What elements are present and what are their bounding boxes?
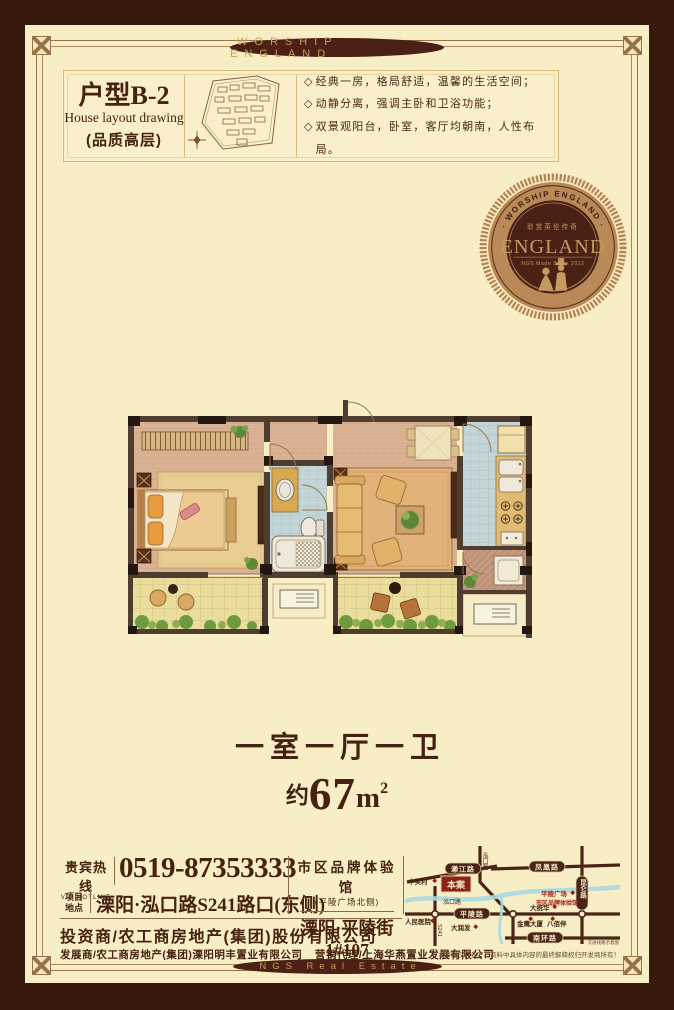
feature-text: 双景观阳台，卧室，客厅均朝南，人性布局。 [316, 116, 550, 161]
road-label: 南环路 [533, 934, 557, 943]
area-line: 约67m2 [0, 768, 674, 820]
feature-item: ◇ 经典一房，格局舒适，温馨的生活空间； [304, 71, 550, 94]
poi-label: 市区品牌体验馆 [536, 899, 578, 907]
feature-text: 动静分离，强调主卧和卫浴功能； [316, 93, 499, 116]
bedroom-furniture [137, 425, 266, 570]
road-label: 平陵路 [460, 910, 484, 919]
corner-ornament-icon [623, 36, 642, 55]
road-label: S241 [436, 924, 442, 937]
unit-title-block: 户型B-2 House layout drawing (品质高层) [64, 71, 184, 161]
compass-icon [188, 131, 206, 149]
diamond-bullet-icon: ◇ [304, 93, 314, 116]
top-banner-label: WORSHIP ENGLAND [230, 36, 444, 60]
bottom-banner: NGS Real Estate [233, 959, 442, 974]
unit-quality: (品质高层) [86, 129, 162, 150]
fridge [498, 426, 525, 453]
diamond-bullet-icon: ◇ [304, 71, 314, 94]
diamond-bullet-icon: ◇ [304, 116, 314, 161]
room-count: 一室一厅一卫 [0, 724, 674, 766]
approx-label: 约 [286, 783, 309, 808]
road-label: 濑江路 [451, 865, 475, 874]
top-banner: WORSHIP ENGLAND [230, 38, 444, 57]
road-label: 泓口路 [443, 898, 461, 906]
road-label: 泓口路 [481, 851, 488, 871]
location-map: 濑江路 凤凰路 平陵路 南环路 昆仑路 本案 泓口路 泓口路 S241 中关村 … [405, 846, 620, 946]
badge-subtitle: NGS Made Since 2012 [521, 261, 584, 267]
unit-subtitle: House layout drawing [64, 110, 183, 126]
poi-label: 中关村 [408, 877, 428, 886]
corridor-floor [270, 422, 327, 462]
feature-list: ◇ 经典一房，格局舒适，温馨的生活空间； ◇ 动静分离，强调主卧和卫浴功能； ◇… [304, 71, 550, 161]
floor-plan [128, 389, 532, 647]
map-caption: 交通线路示意图 [588, 939, 620, 946]
corner-ornament-icon [32, 36, 51, 55]
corner-ornament-icon [623, 956, 642, 975]
sofa [337, 484, 362, 556]
site-marker-label: 本案 [447, 879, 466, 890]
header-divider [296, 75, 297, 157]
corner-ornament-icon [32, 956, 51, 975]
poi-label: 八佰伴 [546, 919, 567, 928]
badge-tagline: 聆赏英伦传奇 [527, 222, 579, 231]
area-superscript: 2 [380, 780, 388, 797]
feature-text: 经典一房，格局舒适，温馨的生活空间； [316, 71, 536, 94]
feature-item: ◇ 动静分离，强调主卧和卫浴功能； [304, 93, 550, 116]
header-box: 户型B-2 House layout drawing (品质高层) [63, 70, 559, 162]
england-brand-badge: · WORSHIP ENGLAND · 聆赏英伦传奇 ENGLAND NGS M… [477, 171, 629, 323]
poster-page: WORSHIP ENGLAND 户型B-2 House layout drawi… [0, 0, 674, 1010]
unit-name: 户型B-2 [78, 82, 169, 109]
area-unit: m [356, 782, 380, 814]
poi-label: 大润发 [451, 923, 471, 932]
map-pois: 中关村 人民医院 大润发 大统华 金鹰大厦 八佰伴 平陵广场 市区品牌体验馆 [405, 877, 578, 932]
road-label: 凤凰路 [535, 863, 559, 872]
site-plan-thumbnail [185, 73, 295, 157]
area-number: 67 [309, 769, 356, 819]
poi-label: 人民医院 [405, 917, 432, 926]
badge-title: ENGLAND [501, 236, 606, 258]
site-plan-graphic [185, 73, 295, 157]
poi-label: 金鹰大厦 [516, 919, 544, 928]
poi-label: 平陵广场 [541, 889, 568, 898]
bottom-banner-label: NGS Real Estate [253, 961, 421, 972]
unit-summary: 一室一厅一卫 约67m2 [0, 724, 674, 820]
feature-item: ◇ 双景观阳台，卧室，客厅均朝南，人性布局。 [304, 116, 550, 161]
